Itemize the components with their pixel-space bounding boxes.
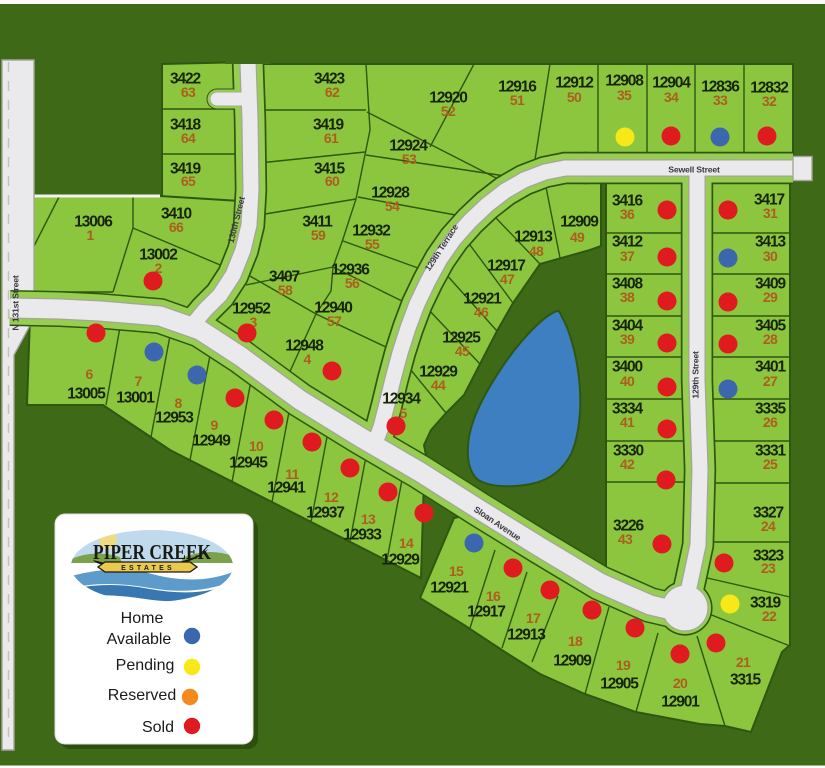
svg-text:62: 62 xyxy=(325,84,340,100)
svg-text:12929: 12929 xyxy=(381,552,420,569)
svg-text:24: 24 xyxy=(761,518,776,534)
svg-text:12917: 12917 xyxy=(467,604,505,621)
svg-text:30: 30 xyxy=(763,248,778,264)
svg-text:43: 43 xyxy=(618,531,633,547)
svg-text:Sewell Street: Sewell Street xyxy=(668,165,720,175)
svg-text:Home: Home xyxy=(121,610,164,627)
svg-text:41: 41 xyxy=(620,414,635,430)
svg-text:12933: 12933 xyxy=(343,527,382,544)
svg-text:28: 28 xyxy=(763,331,778,347)
svg-text:37: 37 xyxy=(620,248,635,264)
svg-text:12945: 12945 xyxy=(229,455,268,472)
svg-text:16: 16 xyxy=(486,588,501,604)
svg-text:13001: 13001 xyxy=(116,390,155,407)
svg-text:19: 19 xyxy=(616,657,631,673)
svg-text:6: 6 xyxy=(85,366,93,382)
svg-text:57: 57 xyxy=(327,313,342,329)
svg-text:11: 11 xyxy=(285,466,299,482)
svg-text:65: 65 xyxy=(181,173,196,189)
svg-text:52: 52 xyxy=(441,103,456,119)
svg-text:33: 33 xyxy=(713,92,728,108)
svg-text:3315: 3315 xyxy=(730,672,762,689)
svg-text:48: 48 xyxy=(529,243,544,259)
svg-text:27: 27 xyxy=(763,373,778,389)
svg-text:53: 53 xyxy=(402,151,417,167)
svg-text:51: 51 xyxy=(510,92,525,108)
svg-text:32: 32 xyxy=(762,93,777,109)
svg-text:12: 12 xyxy=(324,489,339,505)
svg-text:8: 8 xyxy=(174,395,182,411)
svg-text:13: 13 xyxy=(361,511,376,527)
svg-text:Reserved: Reserved xyxy=(108,687,176,704)
svg-text:17: 17 xyxy=(526,610,541,626)
svg-text:7: 7 xyxy=(134,373,142,389)
svg-text:26: 26 xyxy=(763,414,778,430)
svg-text:1: 1 xyxy=(86,227,94,243)
svg-text:10: 10 xyxy=(249,438,264,454)
svg-text:PIPER CREEK: PIPER CREEK xyxy=(93,540,212,564)
svg-text:39: 39 xyxy=(620,331,635,347)
svg-text:12953: 12953 xyxy=(155,410,194,427)
svg-text:29: 29 xyxy=(763,289,778,305)
svg-text:64: 64 xyxy=(181,130,196,146)
svg-text:44: 44 xyxy=(431,377,446,393)
svg-text:36: 36 xyxy=(620,206,635,222)
svg-text:46: 46 xyxy=(474,304,489,320)
svg-text:63: 63 xyxy=(181,84,196,100)
svg-text:22: 22 xyxy=(762,608,777,624)
svg-text:35: 35 xyxy=(617,87,632,103)
svg-text:60: 60 xyxy=(325,173,340,189)
svg-text:129th Street: 129th Street xyxy=(690,351,700,399)
svg-text:Pending: Pending xyxy=(116,657,175,674)
svg-text:23: 23 xyxy=(761,560,776,576)
svg-text:55: 55 xyxy=(365,236,380,252)
svg-text:47: 47 xyxy=(500,271,515,287)
svg-text:12921: 12921 xyxy=(430,580,469,597)
svg-text:45: 45 xyxy=(455,343,470,359)
svg-text:20: 20 xyxy=(673,675,688,691)
svg-text:34: 34 xyxy=(664,89,679,105)
svg-text:12905: 12905 xyxy=(600,676,639,693)
svg-text:12913: 12913 xyxy=(507,627,546,644)
svg-text:12941: 12941 xyxy=(267,480,306,497)
svg-text:66: 66 xyxy=(169,219,184,235)
svg-text:12937: 12937 xyxy=(306,505,344,522)
svg-text:56: 56 xyxy=(345,275,360,291)
svg-text:12949: 12949 xyxy=(192,433,231,450)
svg-text:13006: 13006 xyxy=(74,214,113,231)
svg-text:12909: 12909 xyxy=(560,214,599,231)
svg-text:13005: 13005 xyxy=(67,386,106,403)
svg-text:61: 61 xyxy=(324,130,339,146)
svg-text:42: 42 xyxy=(620,456,635,472)
svg-text:25: 25 xyxy=(763,456,778,472)
svg-text:40: 40 xyxy=(620,373,635,389)
svg-text:49: 49 xyxy=(570,229,585,245)
svg-text:58: 58 xyxy=(278,282,293,298)
svg-text:ESTATES: ESTATES xyxy=(121,565,175,572)
svg-text:Available: Available xyxy=(107,631,172,648)
svg-text:54: 54 xyxy=(385,198,400,214)
svg-text:31: 31 xyxy=(763,205,778,221)
svg-text:50: 50 xyxy=(567,89,582,105)
svg-text:12901: 12901 xyxy=(661,694,700,711)
svg-text:14: 14 xyxy=(399,535,414,551)
svg-text:15: 15 xyxy=(449,563,464,579)
svg-text:21: 21 xyxy=(736,654,751,670)
svg-text:N 131st Street: N 131st Street xyxy=(10,275,20,330)
svg-text:38: 38 xyxy=(620,289,635,305)
svg-text:9: 9 xyxy=(210,417,218,433)
svg-text:12909: 12909 xyxy=(553,653,592,670)
svg-text:18: 18 xyxy=(568,633,583,649)
svg-text:Sold: Sold xyxy=(142,719,174,736)
svg-text:4: 4 xyxy=(303,351,311,367)
svg-text:59: 59 xyxy=(311,227,326,243)
